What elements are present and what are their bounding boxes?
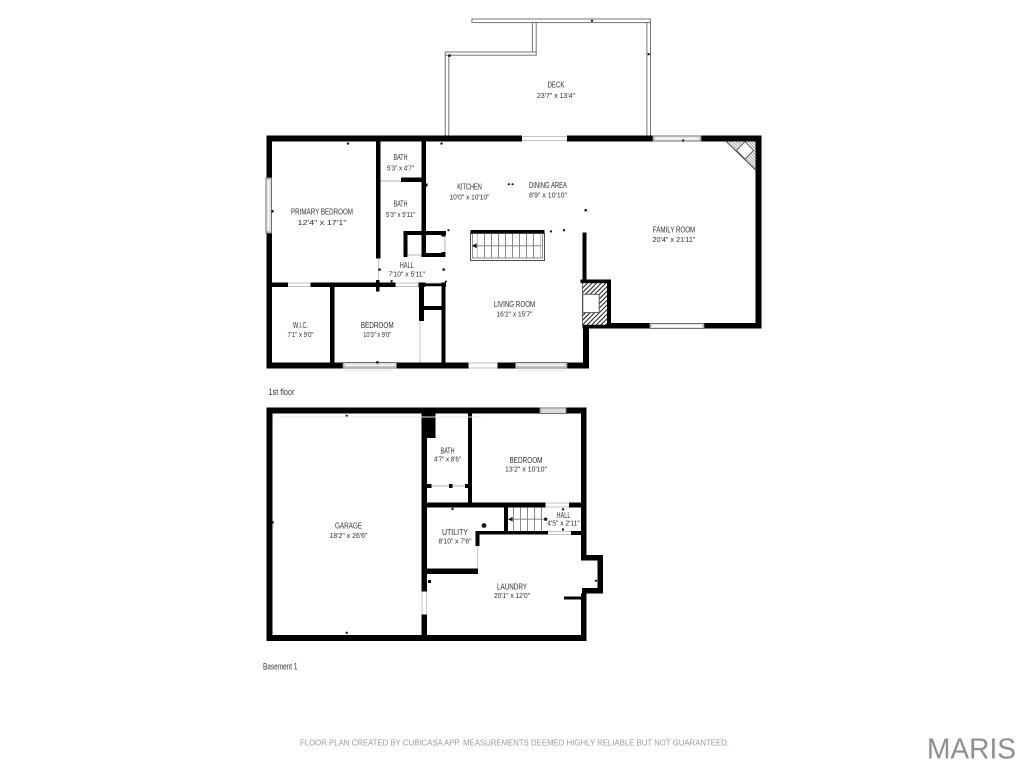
svg-text:PRIMARY BEDROOM: PRIMARY BEDROOM — [291, 208, 353, 217]
svg-text:KITCHEN: KITCHEN — [457, 183, 482, 192]
svg-text:7'10" x 5'11": 7'10" x 5'11" — [388, 270, 425, 279]
svg-text:4'7" x 8'6": 4'7" x 8'6" — [434, 455, 461, 464]
svg-text:7'1" x 9'0": 7'1" x 9'0" — [288, 330, 314, 339]
svg-text:5'3" x 4'7": 5'3" x 4'7" — [387, 164, 414, 173]
svg-text:16'2" x 15'7": 16'2" x 15'7" — [497, 310, 533, 319]
svg-text:DECK: DECK — [548, 81, 566, 90]
svg-text:4'5" x 2'11": 4'5" x 2'11" — [547, 519, 580, 528]
svg-text:20'1" x 12'0": 20'1" x 12'0" — [494, 591, 530, 600]
svg-text:GARAGE: GARAGE — [335, 522, 362, 531]
svg-text:BATH: BATH — [394, 153, 408, 162]
svg-text:FAMILY ROOM: FAMILY ROOM — [653, 225, 695, 234]
svg-text:1st floor: 1st floor — [269, 387, 295, 397]
svg-text:12'4" x 17'1": 12'4" x 17'1" — [298, 218, 347, 227]
svg-text:BATH: BATH — [394, 200, 408, 209]
svg-text:8'9" x 10'10": 8'9" x 10'10" — [529, 190, 567, 199]
svg-text:5'3" x 5'11": 5'3" x 5'11" — [386, 210, 415, 219]
svg-text:LIVING ROOM: LIVING ROOM — [494, 300, 536, 309]
svg-text:Basement 1: Basement 1 — [263, 662, 298, 672]
svg-text:13'2" x 10'10": 13'2" x 10'10" — [505, 464, 547, 473]
svg-text:BEDROOM: BEDROOM — [361, 321, 394, 330]
svg-text:FLOOR PLAN CREATED BY CUBICASA: FLOOR PLAN CREATED BY CUBICASA APP. MEAS… — [300, 738, 729, 747]
svg-text:20'4" x 21'11": 20'4" x 21'11" — [653, 235, 696, 244]
svg-text:10'0" x 10'10": 10'0" x 10'10" — [450, 192, 490, 201]
svg-text:18'2" x 26'6": 18'2" x 26'6" — [330, 531, 368, 540]
svg-text:DINING AREA: DINING AREA — [529, 181, 568, 190]
svg-text:W.I.C.: W.I.C. — [293, 321, 308, 330]
svg-text:10'3" x 9'0": 10'3" x 9'0" — [363, 330, 391, 339]
svg-text:8'10" x 7'6": 8'10" x 7'6" — [439, 536, 472, 545]
svg-text:MARIS: MARIS — [927, 734, 1016, 766]
svg-text:23'7" x 13'4": 23'7" x 13'4" — [537, 91, 575, 100]
